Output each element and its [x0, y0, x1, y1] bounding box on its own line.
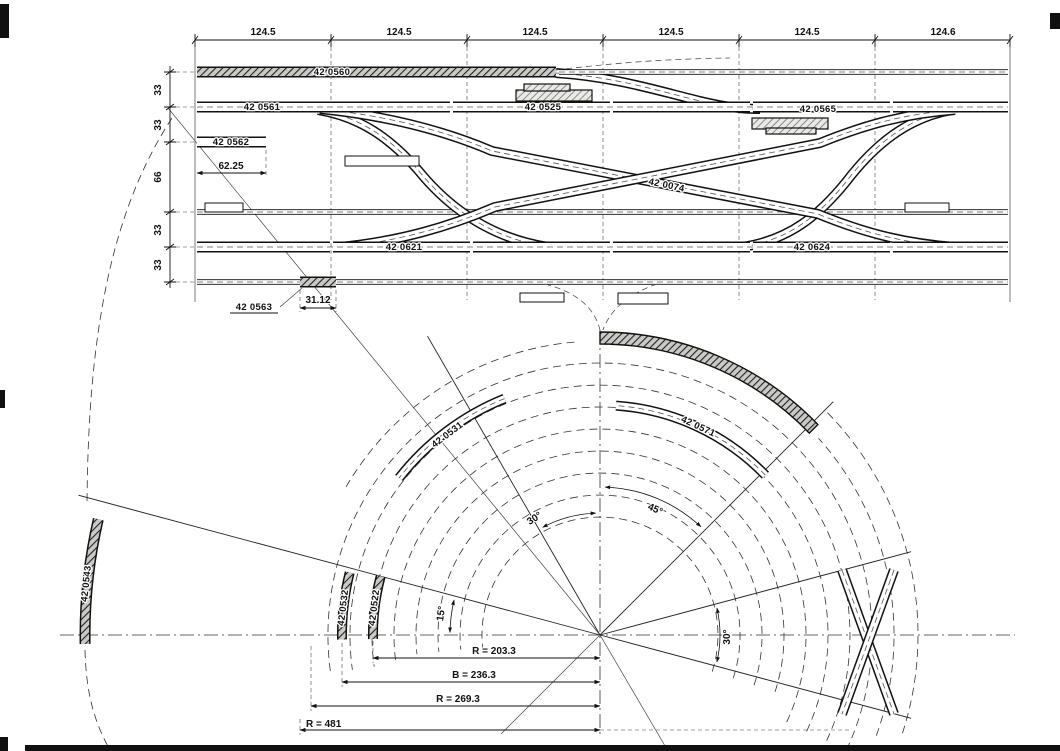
- radius-dimensions: [300, 641, 852, 735]
- left-dim-5: 33: [153, 259, 164, 271]
- radius-236: B = 236.3: [452, 670, 496, 681]
- curves-to-fan: [545, 284, 657, 330]
- left-dim-2: 33: [153, 119, 164, 131]
- top-dim-1: 124.5: [250, 27, 275, 38]
- part-label-42-0621: 42 0621: [386, 242, 423, 253]
- labels: 124.5 124.5 124.5 124.5 124.5 124.6 33 3…: [79, 27, 956, 730]
- angle-30-right: 30°: [722, 629, 733, 644]
- radius-203: R = 203.3: [472, 646, 516, 657]
- part-label-42-0565: 42 0565: [800, 104, 837, 115]
- part-label-42-0562: 42 0562: [213, 137, 249, 148]
- switch-motor-box-42-0565: [752, 118, 828, 134]
- angle-30-left: 30°: [525, 510, 544, 527]
- crossing-track-42-0074: [320, 109, 955, 247]
- part-label-42-0560: 42 0560: [314, 67, 350, 78]
- dim-31-12: 31.12: [305, 295, 330, 306]
- left-dim-1: 33: [153, 84, 164, 96]
- scan-artifact: [0, 4, 9, 38]
- curved-track-42-0571: [616, 406, 765, 476]
- angle-15: 15°: [435, 605, 448, 622]
- left-dim-3: 66: [153, 171, 164, 183]
- angle-45: 45°: [646, 502, 664, 518]
- track-plan-sheet: 124.5 124.5 124.5 124.5 124.5 124.6 33 3…: [0, 0, 1060, 751]
- top-dim-4: 124.5: [658, 27, 683, 38]
- part-label-42-0624: 42 0624: [794, 242, 831, 253]
- part-label-42-0561: 42 0561: [244, 102, 281, 113]
- scan-artifact: [1050, 13, 1060, 29]
- top-dim-2: 124.5: [386, 27, 411, 38]
- scan-artifact: [25, 745, 1060, 751]
- curve-fan-plan: [60, 108, 1015, 751]
- top-dim-6: 124.6: [930, 27, 955, 38]
- top-dim-5: 124.5: [794, 27, 819, 38]
- part-label-42-0522: 42 0522: [367, 589, 382, 627]
- crossing-track-right: [842, 570, 894, 714]
- curved-track-dark: [600, 332, 818, 433]
- scan-artifact: [0, 390, 5, 408]
- top-dim-3: 124.5: [522, 27, 547, 38]
- angle-arcs: [450, 487, 720, 662]
- part-label-42-0532: 42 0532: [336, 589, 351, 627]
- part-label-42-0525: 42 0525: [525, 102, 562, 113]
- scan-artifact: [0, 737, 8, 751]
- straight-yard-plan: [164, 34, 1013, 330]
- switch-motor-box-42-0525: [516, 84, 592, 101]
- technical-drawing: 124.5 124.5 124.5 124.5 124.5 124.6 33 3…: [0, 0, 1060, 751]
- part-label-42-0563: 42 0563: [236, 302, 272, 313]
- part-label-42-0571: 42 0571: [679, 414, 717, 440]
- left-dim-4: 33: [153, 224, 164, 236]
- left-dimension-chain: [164, 66, 194, 288]
- radius-481: R = 481: [306, 719, 342, 730]
- dim-62-25: 62.25: [218, 161, 243, 172]
- part-label-42-0074: 42 0074: [648, 176, 686, 194]
- radius-269: R = 269.3: [436, 694, 480, 705]
